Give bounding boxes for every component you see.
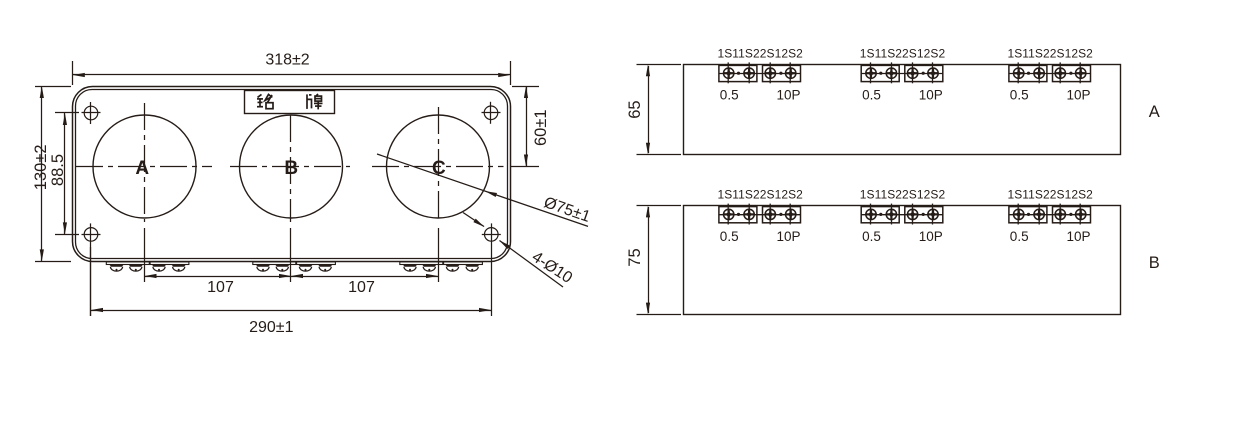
svg-text:65: 65: [626, 100, 644, 118]
svg-text:B: B: [1149, 254, 1160, 272]
svg-text:A: A: [135, 158, 149, 179]
svg-text:B: B: [284, 158, 298, 179]
svg-text:A: A: [1149, 103, 1160, 121]
svg-text:60±1: 60±1: [532, 109, 550, 146]
svg-text:75: 75: [626, 248, 644, 266]
svg-text:290±1: 290±1: [249, 319, 293, 336]
svg-text:Ø75±1: Ø75±1: [542, 194, 593, 226]
svg-text:88.5: 88.5: [49, 154, 67, 186]
svg-text:130±2: 130±2: [32, 144, 50, 190]
svg-text:318±2: 318±2: [265, 52, 309, 69]
svg-text:107: 107: [207, 279, 234, 296]
svg-text:107: 107: [348, 279, 375, 296]
